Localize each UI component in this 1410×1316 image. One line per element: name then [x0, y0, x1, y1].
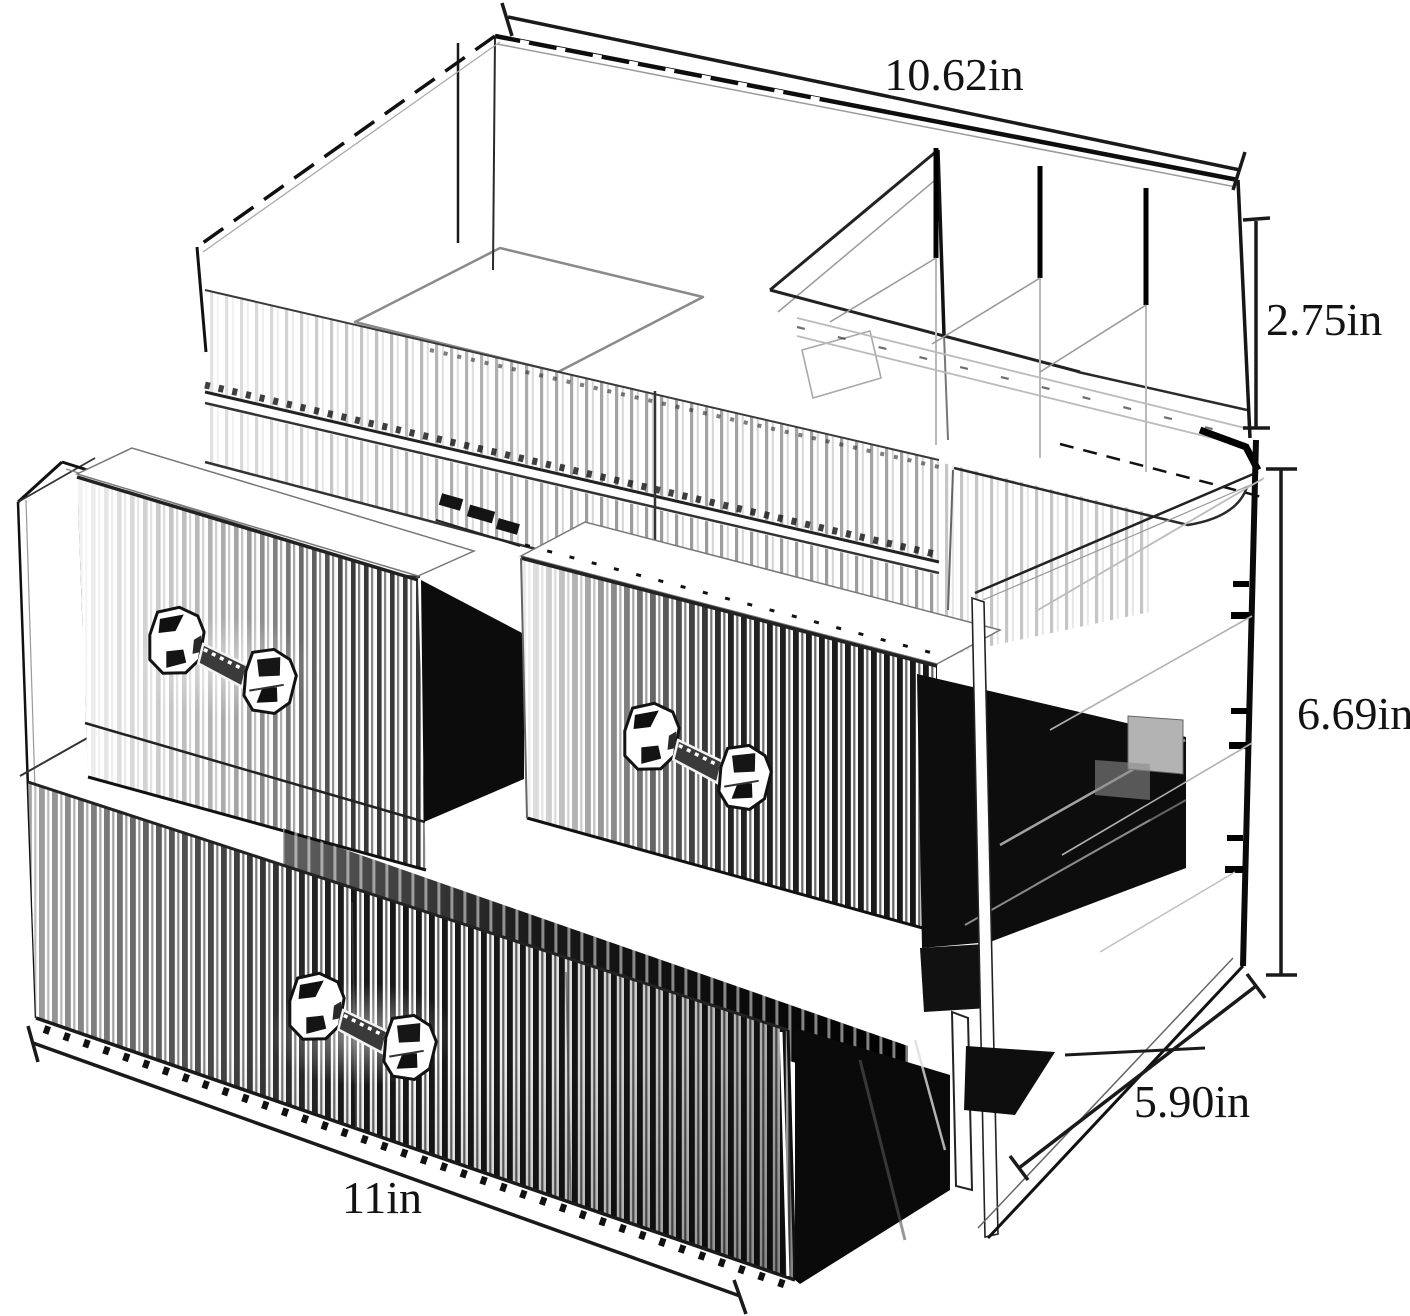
svg-text:11in: 11in [342, 1172, 422, 1223]
svg-text:5.90in: 5.90in [1134, 1076, 1250, 1127]
svg-text:6.69in: 6.69in [1297, 688, 1410, 739]
svg-text:10.62in: 10.62in [884, 49, 1023, 100]
svg-text:2.75in: 2.75in [1266, 294, 1382, 345]
